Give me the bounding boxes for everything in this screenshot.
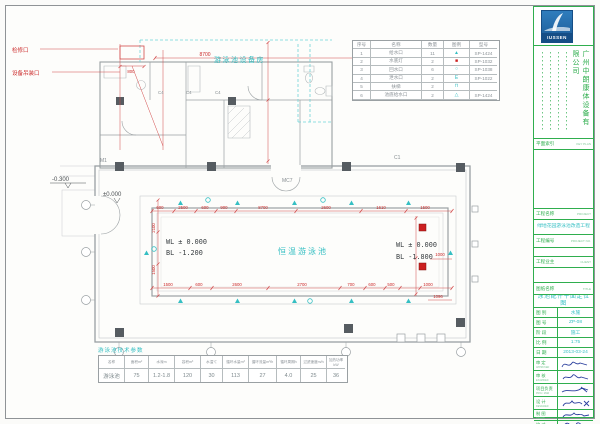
dim-label: 1000: [435, 252, 445, 257]
legend-cell: 2: [422, 83, 444, 91]
params-header: 过滤速度m/h: [301, 356, 327, 369]
drawing-title-header: 图纸名称 TITLE: [534, 282, 593, 294]
hoist-opening-label: 设备吊装口: [12, 69, 40, 77]
params-header: 容积m³: [175, 356, 201, 369]
sign-label-en: APPROVED: [536, 366, 557, 369]
project-label: 工程名称: [536, 211, 554, 217]
params-header: 水深m: [149, 356, 175, 369]
field-row: 日 期 2013-03-24: [534, 347, 593, 357]
params-header: 加热功率kW: [327, 356, 345, 369]
params-table-title: 游泳池技术参数: [98, 346, 144, 354]
legend-header: 数量: [422, 41, 444, 49]
level-label: ±0.000: [103, 192, 122, 198]
signature-icon: [560, 397, 592, 409]
field-row: 比 例 1:75: [534, 337, 593, 347]
params-header: 名称: [99, 356, 125, 369]
field-row: 图 号 ZP-08: [534, 317, 593, 327]
dim-label: 1000: [423, 282, 433, 287]
dim-label: 2600: [232, 282, 242, 287]
pool-label: 恒温游泳池: [278, 246, 328, 256]
sign-label-en: EXAMINED: [536, 379, 557, 382]
company-contact-text: [542, 52, 543, 130]
drawing-sheet: 游泳池设备房 恒温游泳池 WL ± 0.000 BL -1.200 WL ± 0…: [0, 0, 600, 424]
grid-bubbles: [82, 201, 466, 357]
dim-label: 600: [156, 205, 164, 210]
params-value: 30: [201, 369, 223, 382]
dim-label: 900: [220, 205, 228, 210]
params-header: 水温℃: [201, 356, 223, 369]
company-name: 广州中朗康体设备有限公司: [570, 50, 590, 134]
field-value: 1:75: [558, 338, 593, 347]
legend-cell: 11: [422, 49, 444, 57]
door-opening: [94, 196, 101, 234]
legend-cell: 泄水口: [371, 75, 422, 83]
params-value: 113: [223, 369, 249, 382]
legend-cell: 2: [422, 58, 444, 66]
return-symbol-icon: ○: [444, 66, 470, 74]
company-contact-text: [566, 52, 567, 130]
field-label: 图 别: [534, 308, 558, 317]
dim-label: 1500: [151, 265, 156, 275]
logo-text: IUSSEN: [542, 33, 572, 42]
door-opening: [271, 165, 301, 177]
pool-hall: [60, 162, 478, 342]
equipment-pad-hatch: [228, 106, 250, 138]
field-value: ZP-08: [558, 318, 593, 327]
key-plan-header: 平面索引 KEY PLAN: [534, 138, 593, 149]
logo-swoosh-icon: [542, 11, 572, 33]
field-value: 2013-03-24: [558, 348, 593, 357]
dim-label: 2500: [178, 205, 188, 210]
signature-icon: [560, 384, 592, 396]
legend-cell: 4: [353, 75, 371, 83]
floor-inlet-symbol-icon: △: [444, 91, 470, 99]
dim-label: 1610: [376, 205, 386, 210]
params-header: 面积m²: [125, 356, 149, 369]
entrance-door-swings: [101, 196, 120, 234]
signature-icon: [560, 358, 592, 370]
dim-label: 1096: [433, 294, 443, 299]
dim-label: 2600: [321, 205, 331, 210]
dim-label: 600: [195, 282, 203, 287]
sign-row: 项目负责PROJ. MGR: [534, 383, 593, 396]
company-section: 广州中朗康体设备有限公司: [534, 45, 593, 138]
legend-cell: 2: [353, 58, 371, 66]
sign-row: 设 计DESIGNED: [534, 396, 593, 409]
legend-cell: [470, 83, 497, 91]
porch: [62, 190, 95, 236]
sign-label-en: PROJ. MGR: [536, 392, 557, 395]
params-header: 循环流量m³/h: [249, 356, 277, 369]
drawing-title: 泳池配件平面定位图: [534, 294, 593, 307]
field-label: 图 号: [534, 318, 558, 327]
legend-cell: 水底灯: [371, 58, 422, 66]
company-logo: IUSSEN: [541, 10, 573, 43]
equipment-room: [100, 62, 332, 168]
legend-cell: 给水口: [371, 49, 422, 57]
legend-cell: 5: [353, 83, 371, 91]
field-row: 图 别 水施: [534, 307, 593, 317]
legend-cell: 1: [353, 49, 371, 57]
toilet-fixture: [306, 73, 313, 83]
dim-label: 8700: [258, 205, 268, 210]
key-plan-box: [534, 149, 593, 208]
grid-label-mc7: MC7: [282, 178, 293, 184]
params-value: 1.2-1.8: [149, 369, 175, 382]
legend-header: 型号: [470, 41, 497, 49]
sign-row: 制 图DRAWN: [534, 409, 593, 420]
dim-label: 600: [368, 282, 376, 287]
toilet-fixture: [315, 88, 325, 95]
legend-cell: SP-1424: [470, 49, 497, 57]
sink-fixture: [137, 81, 146, 90]
params-value: 27: [249, 369, 277, 382]
access-hatch-label: 检修口: [12, 46, 29, 54]
water-level-left: WL ± 0.000: [166, 238, 207, 246]
door-swings: [122, 86, 262, 135]
legend-cell: 6: [353, 91, 371, 99]
project-no-value: [534, 247, 593, 256]
grid-label-c1: C1: [394, 155, 401, 161]
legend-cell: 回水口: [371, 66, 422, 74]
exterior-lines: [60, 166, 95, 176]
legend-cell: SP-1424: [470, 91, 497, 99]
underwater-light-symbol-icon: ■: [444, 58, 470, 66]
client-value: [534, 267, 593, 282]
key-plan-label: 平面索引: [536, 141, 554, 147]
bottom-level-right: BL -1.800: [396, 253, 433, 261]
level-label: -0.300: [52, 177, 70, 183]
inlet-symbol-icon: ▲: [444, 49, 470, 57]
legend-header: 名称: [371, 41, 422, 49]
drawing-title-label: 图纸名称: [536, 286, 554, 292]
field-label: 阶 段: [534, 328, 558, 337]
dim-label: 500: [387, 282, 395, 287]
legend-cell: 6: [422, 66, 444, 74]
legend-cell: SP-1032: [470, 58, 497, 66]
sign-row: 审 核EXAMINED: [534, 370, 593, 383]
project-label-en: PROJECT: [577, 212, 591, 216]
project-no-header: 工程编号 PROJECT NO.: [534, 234, 593, 247]
params-value: 75: [125, 369, 149, 382]
structural-columns: [116, 97, 236, 105]
ladder-symbol-icon: ⊓: [444, 83, 470, 91]
project-no-label-en: PROJECT NO.: [571, 239, 591, 243]
dim-label: 2100: [151, 223, 156, 233]
dim-label: 600: [201, 205, 209, 210]
grid-label-m1: M1: [100, 158, 107, 164]
params-value: 游泳池: [99, 369, 125, 382]
room-label: 游泳池设备房: [214, 55, 265, 64]
field-label: 日 期: [534, 348, 558, 357]
field-row: 阶 段 施工: [534, 327, 593, 337]
drawing-title-label-en: TITLE: [583, 287, 591, 291]
sign-row: 审 定APPROVED: [534, 357, 593, 370]
legend-cell: 2: [422, 91, 444, 99]
field-value: 水施: [558, 308, 593, 317]
project-no-label: 工程编号: [536, 238, 554, 244]
title-block: IUSSEN 广州中朗康体设备有限公司 平面索引 KEY PLAN 工程名称 P…: [533, 6, 594, 418]
client-label: 工程业主: [536, 259, 554, 265]
dim-label: 700: [347, 282, 355, 287]
project-name: 绿地花园游泳池改造工程: [534, 219, 593, 234]
field-label: 比 例: [534, 338, 558, 347]
params-header: 循环水量m³: [223, 356, 249, 369]
key-plan-label-en: KEY PLAN: [576, 142, 591, 146]
params-value: 36: [327, 369, 345, 382]
dim-label: 8700: [199, 52, 210, 58]
field-value: 施工: [558, 328, 593, 337]
grid-label-c4: C4: [215, 90, 221, 95]
water-level-right: WL ± 0.000: [396, 241, 437, 249]
project-header: 工程名称 PROJECT: [534, 208, 593, 219]
legend-cell: SP-1022: [470, 75, 497, 83]
signature-icon: [560, 410, 592, 420]
bottom-level-left: BL -1.200: [166, 249, 203, 257]
dim-label: 2700: [297, 282, 307, 287]
legend-header: 图例: [444, 41, 470, 49]
logo-section: IUSSEN: [534, 7, 593, 45]
params-header: 循环周期h: [277, 356, 301, 369]
sign-row: 校 对CHECKED: [534, 420, 593, 424]
company-contact-text: [550, 52, 551, 130]
dim-label: 1500: [163, 282, 173, 287]
pipe-lines: [140, 40, 332, 122]
legend-header: 序号: [353, 41, 371, 49]
signature-icon: [560, 371, 592, 383]
grid-label-c4: C4: [186, 90, 192, 95]
params-value: 4.0: [277, 369, 301, 382]
legend-cell: 扶梯: [371, 83, 422, 91]
dim-label: 1500: [420, 205, 430, 210]
client-header: 工程业主 CLIENT: [534, 256, 593, 267]
legend-table: 序号 名称 数量 图例 型号 1 给水口 11 ▲ SP-1424 2 水底灯 …: [352, 40, 500, 101]
drain-symbol-icon: E: [444, 75, 470, 83]
sign-label-en: DESIGNED: [536, 405, 557, 408]
legend-cell: 池底给水口: [371, 91, 422, 99]
dim-label: 800: [127, 69, 135, 74]
legend-cell: SP-1038: [470, 66, 497, 74]
legend-cell: 2: [422, 75, 444, 83]
client-label-en: CLIENT: [580, 260, 591, 264]
legend-cell: 3: [353, 66, 371, 74]
params-value: 120: [175, 369, 201, 382]
company-contact-text: [558, 52, 559, 130]
grid-label-c4: C4: [158, 90, 164, 95]
params-table: 名称 面积m² 水深m 容积m³ 水温℃ 循环水量m³ 循环流量m³/h 循环周…: [98, 355, 348, 383]
params-value: 25: [301, 369, 327, 382]
